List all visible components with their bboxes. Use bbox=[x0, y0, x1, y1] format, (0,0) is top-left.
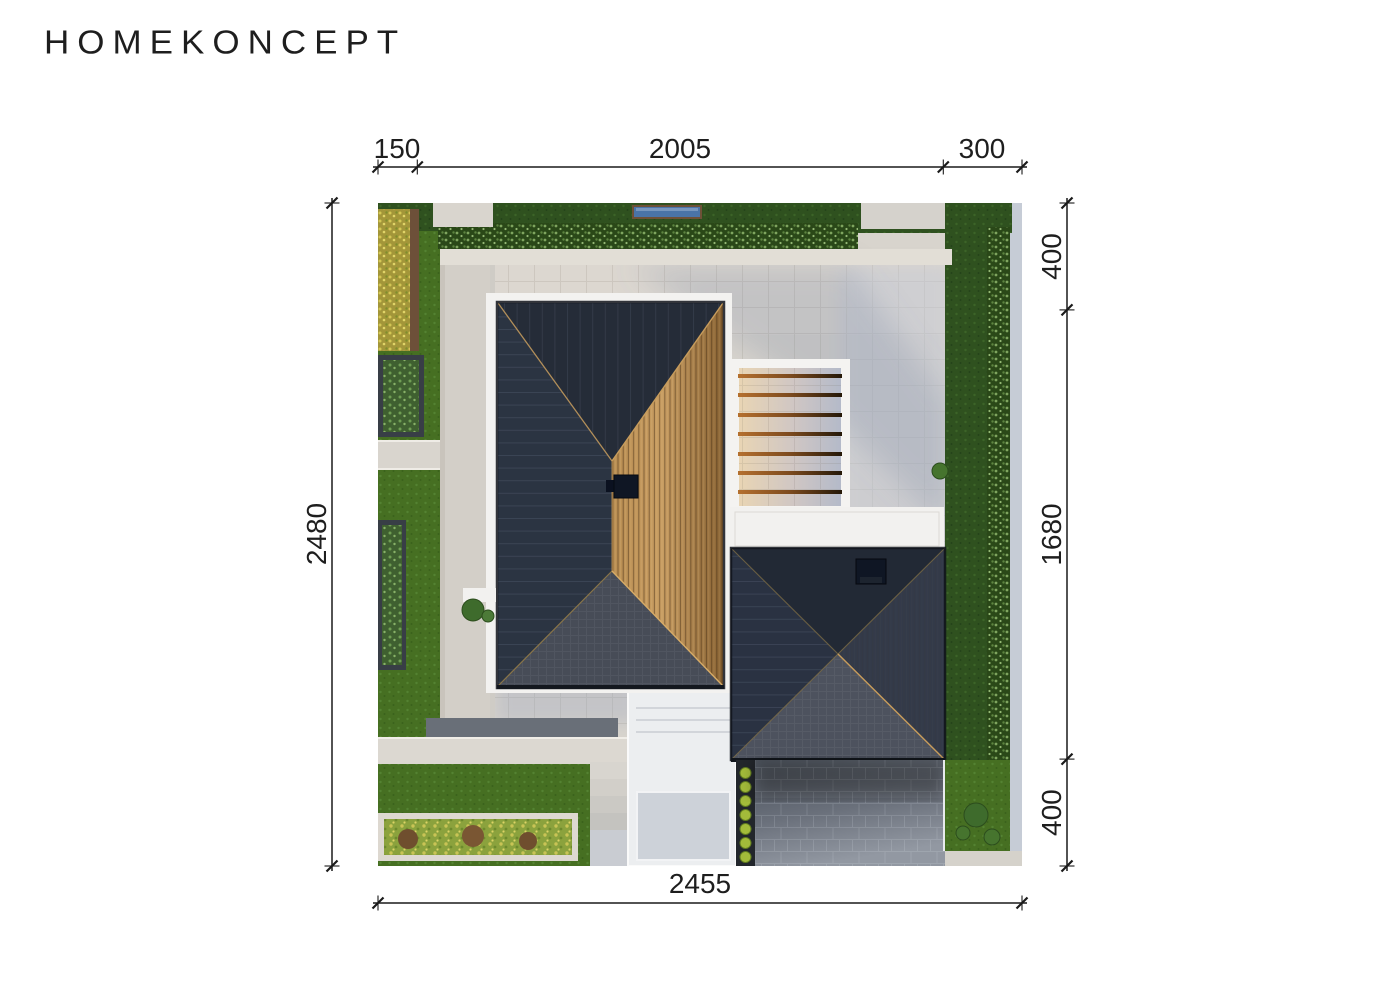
dim-left bbox=[325, 198, 340, 872]
dim-label-top-right: 300 bbox=[959, 133, 1006, 164]
pool bbox=[633, 206, 701, 218]
garage-roof bbox=[731, 548, 945, 760]
driveway-planter bbox=[736, 760, 755, 866]
edge-strip bbox=[1010, 203, 1022, 866]
dim-top bbox=[373, 160, 1028, 175]
flat-roof bbox=[730, 507, 944, 551]
dim-label-bottom: 2455 bbox=[669, 868, 731, 899]
site-plan-render bbox=[378, 203, 1022, 866]
pergola bbox=[730, 359, 850, 515]
walkway bbox=[628, 688, 736, 866]
dim-label-right-middle: 1680 bbox=[1036, 503, 1067, 565]
brand-logo: HOMEKONCEPT bbox=[44, 24, 406, 62]
driveway bbox=[755, 760, 947, 866]
dim-bottom bbox=[373, 896, 1028, 911]
garage-chimney bbox=[856, 559, 886, 584]
dim-label-right-bottom: 400 bbox=[1036, 789, 1067, 836]
dim-label-right-top: 400 bbox=[1036, 233, 1067, 280]
dim-right bbox=[1060, 198, 1075, 872]
main-house bbox=[486, 293, 732, 693]
main-roof bbox=[497, 302, 724, 688]
yellow-shrub-bed bbox=[378, 209, 412, 351]
site-plan-svg bbox=[378, 203, 1022, 866]
dim-label-left: 2480 bbox=[301, 503, 332, 565]
dim-label-top-left: 150 bbox=[374, 133, 421, 164]
dim-label-top-middle: 2005 bbox=[649, 133, 711, 164]
garden-bed bbox=[378, 813, 578, 861]
page: HOMEKONCEPT bbox=[0, 0, 1400, 989]
